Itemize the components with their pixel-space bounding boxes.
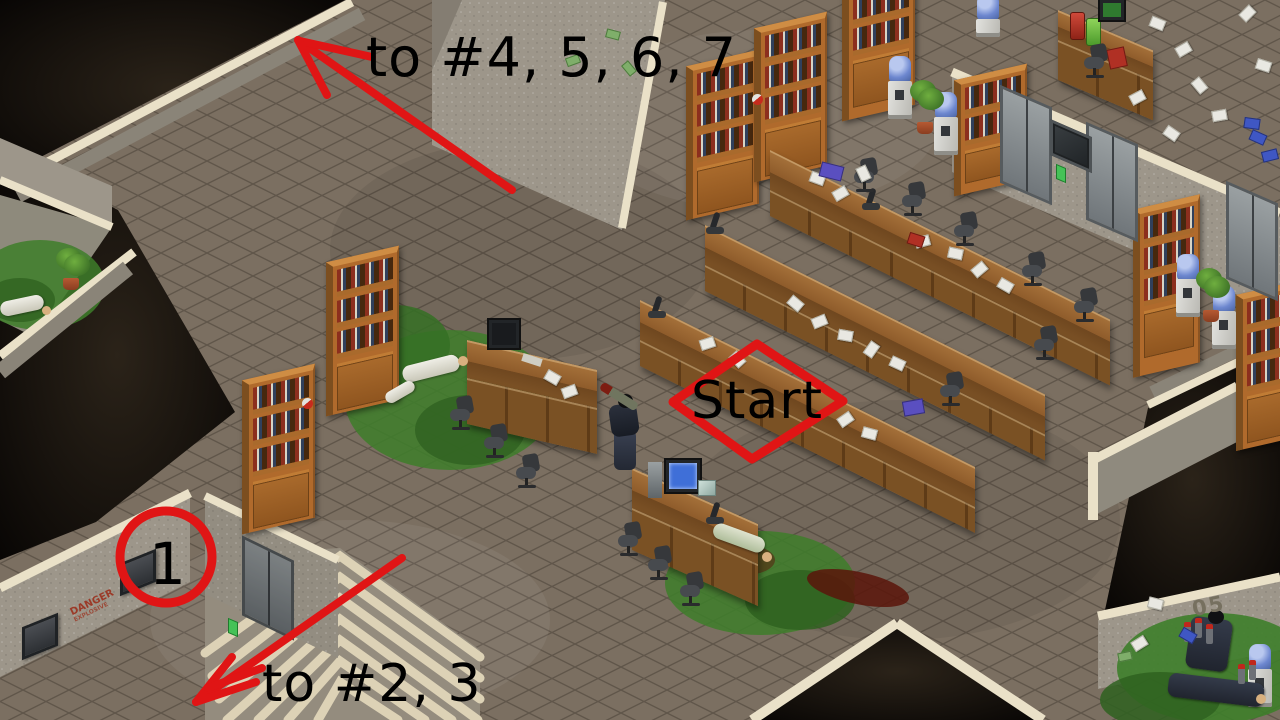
office-chair	[646, 546, 672, 580]
grenade	[1206, 624, 1213, 644]
lab-monitor	[1098, 0, 1126, 22]
office-chair	[514, 454, 540, 488]
office-chair	[952, 212, 978, 246]
red-bag	[1106, 46, 1128, 69]
office-chair	[1020, 252, 1046, 286]
office-chair	[616, 522, 642, 556]
office-chair	[900, 182, 926, 216]
office-chair	[1072, 288, 1098, 322]
potted-plant	[54, 248, 88, 292]
grenade	[1238, 664, 1245, 684]
bookshelf	[242, 364, 315, 535]
glass-cube	[698, 480, 716, 496]
red-canister	[1070, 12, 1085, 40]
office-chair	[482, 424, 508, 458]
office-chair	[938, 372, 964, 406]
dead-scientist-head	[762, 552, 772, 562]
blue-folder	[1243, 117, 1260, 130]
red-white-ball	[302, 398, 313, 409]
player-character[interactable]	[596, 382, 648, 474]
game-viewport[interactable]: DANGER EXPLOSIVE 05 to #4, 5, 6, 7 Start…	[0, 0, 1280, 720]
bookshelf	[754, 12, 827, 183]
computer-monitor	[487, 318, 521, 350]
grenade	[1249, 660, 1256, 680]
potted-plant	[908, 80, 942, 136]
bookshelf	[1236, 281, 1280, 451]
microscope	[706, 210, 724, 236]
route-up-label: to #4, 5, 6, 7	[366, 26, 737, 89]
route-down-label: to #2, 3	[262, 654, 482, 714]
office-chair	[1032, 326, 1058, 360]
dead-scientist-head	[458, 356, 468, 366]
computer-monitor-blue	[664, 458, 702, 494]
paper	[837, 329, 854, 342]
computer-tower	[648, 462, 662, 498]
green-canister	[1086, 18, 1101, 46]
microscope	[648, 294, 666, 320]
red-white-ball	[752, 94, 763, 105]
secret-1-label: 1	[149, 530, 187, 598]
office-chair	[448, 396, 474, 430]
potted-plant	[1194, 268, 1228, 324]
dead-soldier-head	[1256, 694, 1266, 704]
start-label: Start	[691, 371, 823, 431]
office-chair	[678, 572, 704, 606]
dead-scientist-head	[42, 306, 51, 315]
office-chair	[1082, 44, 1108, 78]
microscope	[706, 500, 724, 526]
water-cooler	[976, 0, 1000, 38]
